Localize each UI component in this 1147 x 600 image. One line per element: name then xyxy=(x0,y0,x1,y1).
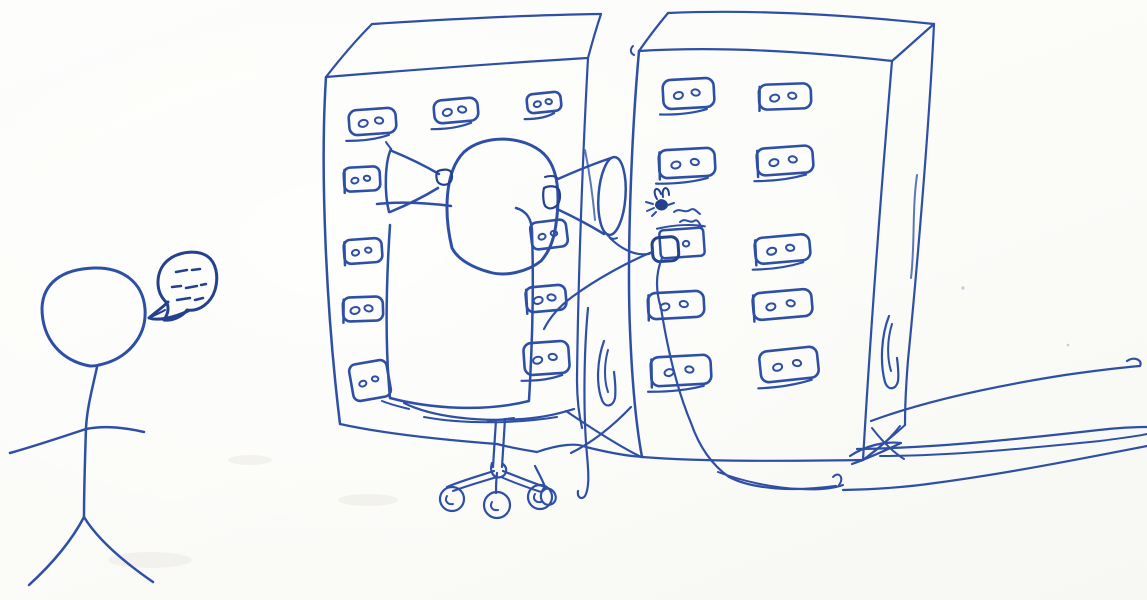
cabinet-top-back-edge xyxy=(372,14,601,24)
mutter-dash xyxy=(177,298,190,300)
vent-slot xyxy=(647,291,704,321)
vent-left-tick xyxy=(650,360,652,388)
vent-left-tick xyxy=(343,300,345,323)
vent-grid-left xyxy=(343,91,571,402)
vent-dot xyxy=(365,247,372,253)
vent-left-tick xyxy=(647,295,649,320)
vent-dot xyxy=(363,175,370,181)
smudge xyxy=(228,455,272,465)
cabinet-top-slant xyxy=(639,13,668,51)
fly-body xyxy=(655,199,668,210)
cabinet-left-edge xyxy=(324,77,340,424)
vent-dot xyxy=(547,294,556,301)
vent-dot xyxy=(679,300,688,308)
right-ear-horn xyxy=(543,156,653,254)
vent-slot xyxy=(752,145,814,182)
cabinet-top-right-corner xyxy=(588,14,601,58)
cabinet-top-slant xyxy=(326,24,372,77)
chair-leg xyxy=(496,473,497,493)
vent-dot xyxy=(545,99,552,105)
fly-leg xyxy=(647,208,654,211)
vent-left-tick xyxy=(756,151,759,177)
vent-left-tick xyxy=(658,152,660,179)
gap-inner-line xyxy=(585,150,595,220)
cabinet-outer-right-edge xyxy=(905,24,934,425)
wheel-inner-mark xyxy=(491,502,498,510)
speech-bubble xyxy=(149,252,217,320)
smudge xyxy=(108,552,192,568)
left-server-cabinet xyxy=(324,14,601,444)
vent-dot xyxy=(673,91,684,100)
vent-underline xyxy=(656,178,708,184)
fly-leg xyxy=(652,212,656,216)
socket-group xyxy=(651,224,707,262)
vent-slot xyxy=(525,284,567,313)
mutter-dash xyxy=(172,286,181,287)
vent-underline xyxy=(346,135,389,142)
chair-stem xyxy=(502,419,505,467)
vent-underline xyxy=(660,109,707,115)
ink-speck xyxy=(961,286,964,289)
mutter-dash xyxy=(195,298,203,300)
cabinet-front-right-edge xyxy=(863,61,892,460)
right-server-cabinet xyxy=(598,12,934,461)
vent-dot xyxy=(351,177,359,184)
horn-cone-bottom xyxy=(390,188,438,212)
fly-buzz-squiggle xyxy=(674,209,700,214)
stick-figure-arm-left xyxy=(10,429,86,453)
fly-leg xyxy=(668,203,674,205)
cables xyxy=(497,252,1147,505)
vent-left-tick xyxy=(525,290,528,314)
vent-slot xyxy=(343,296,384,322)
cable-long-upper xyxy=(871,359,1141,421)
vent-dot xyxy=(671,161,682,170)
mutter-dash xyxy=(186,286,197,288)
vent-slot xyxy=(343,238,383,266)
vent-dot xyxy=(690,158,699,166)
cabinet-top-front-edge xyxy=(639,49,892,61)
vent-dot xyxy=(788,92,797,100)
cabinet-top-right-slant xyxy=(892,24,934,61)
mutter-dash xyxy=(201,284,206,285)
vent-left-tick xyxy=(754,240,757,265)
ink-speck xyxy=(1067,344,1070,347)
handle-right-inner xyxy=(888,324,892,371)
cabinet-right-edge xyxy=(577,58,588,428)
vent-dot xyxy=(533,296,544,305)
vent-dot xyxy=(769,158,780,167)
smudge xyxy=(338,494,398,506)
handle-gap-inner xyxy=(605,350,608,392)
vent-dot xyxy=(442,108,453,117)
vent-dot xyxy=(786,300,795,307)
stick-figure-leg-right xyxy=(84,517,153,582)
caster-wheel xyxy=(484,492,510,518)
vent-dot xyxy=(350,306,361,315)
vent-underline xyxy=(431,123,471,130)
vent-dot xyxy=(374,117,383,124)
vent-left-tick xyxy=(343,242,346,265)
vent-slot xyxy=(519,340,571,381)
cabinet-bottom-edge xyxy=(340,424,497,444)
horn-cone-top xyxy=(392,151,439,174)
vent-dot xyxy=(533,100,542,108)
vent-slot xyxy=(429,97,479,130)
speech-bubble-dashes xyxy=(172,269,206,300)
horn-bell-tick xyxy=(386,142,391,149)
vent-slot xyxy=(654,148,716,185)
handle-gap xyxy=(598,341,615,405)
stick-figure-arm-right xyxy=(86,427,144,432)
office-chair xyxy=(377,203,574,518)
vent-dot xyxy=(691,89,700,97)
vent-dot xyxy=(538,233,547,241)
cabinet-top-front-edge xyxy=(326,58,588,77)
fly-leg xyxy=(646,202,653,204)
cable-hook xyxy=(833,475,841,485)
vent-dot xyxy=(792,359,801,366)
vent-dot xyxy=(765,302,776,311)
vent-underline xyxy=(521,375,562,381)
vent-left-tick xyxy=(344,170,346,193)
vent-dot xyxy=(351,249,359,256)
stick-figure-leg-left xyxy=(29,517,84,585)
vent-slot xyxy=(344,107,397,141)
cabinet-bottom-edge xyxy=(642,457,863,461)
vent-dot xyxy=(685,366,694,374)
corner-tick xyxy=(631,46,634,55)
stick-figure xyxy=(10,268,153,585)
vent-slot xyxy=(750,234,812,271)
mutter-dash xyxy=(192,269,200,270)
vent-underline xyxy=(524,113,554,120)
vent-dot xyxy=(458,106,467,113)
fly-wing xyxy=(655,189,661,199)
socket-box xyxy=(651,224,707,262)
vent-dot xyxy=(772,363,783,372)
fly-wing xyxy=(663,188,669,197)
vent-dot xyxy=(788,156,797,163)
cable-floor-right-low xyxy=(843,446,1147,490)
horn-cable-to-socket xyxy=(610,238,653,254)
seated-person xyxy=(386,139,653,274)
vent-dot xyxy=(372,376,379,381)
cable-knot xyxy=(850,443,901,464)
seated-person-head xyxy=(447,139,558,274)
fly-doodle xyxy=(646,188,702,228)
vent-slot xyxy=(658,78,715,115)
stick-figure-head xyxy=(42,268,145,366)
vent-left-tick xyxy=(759,87,761,111)
stick-figure-torso xyxy=(84,367,97,517)
socket-dot xyxy=(683,241,690,247)
vent-dot xyxy=(532,356,543,365)
vent-dot xyxy=(364,304,373,312)
wheel-inner-mark xyxy=(446,496,453,504)
vent-dot xyxy=(786,244,795,251)
vent-dot xyxy=(766,247,777,256)
horn-bell xyxy=(596,156,628,236)
mutter-dash xyxy=(176,270,187,272)
vent-slot xyxy=(759,83,812,111)
vent-dot xyxy=(358,380,367,388)
vent-dot xyxy=(769,94,780,103)
vent-left-tick xyxy=(752,296,755,322)
cable-vertical-hooked-end xyxy=(578,308,588,498)
vent-slot xyxy=(522,91,562,119)
vent-slot xyxy=(752,288,813,321)
vent-grid-right xyxy=(646,78,820,393)
sketch-page xyxy=(0,0,1147,600)
chair-back-left-edge xyxy=(387,225,390,398)
vent-slot xyxy=(348,359,392,402)
vent-slot xyxy=(343,166,380,193)
vent-dot xyxy=(548,353,557,360)
chair-stem xyxy=(493,420,496,467)
cabinet-top-back-edge xyxy=(668,12,934,24)
caster-wheel xyxy=(440,487,464,511)
sketch-svg xyxy=(0,0,1147,600)
vent-slot xyxy=(755,346,820,389)
vent-dot xyxy=(358,119,369,128)
cable-socket-to-left xyxy=(544,252,652,329)
